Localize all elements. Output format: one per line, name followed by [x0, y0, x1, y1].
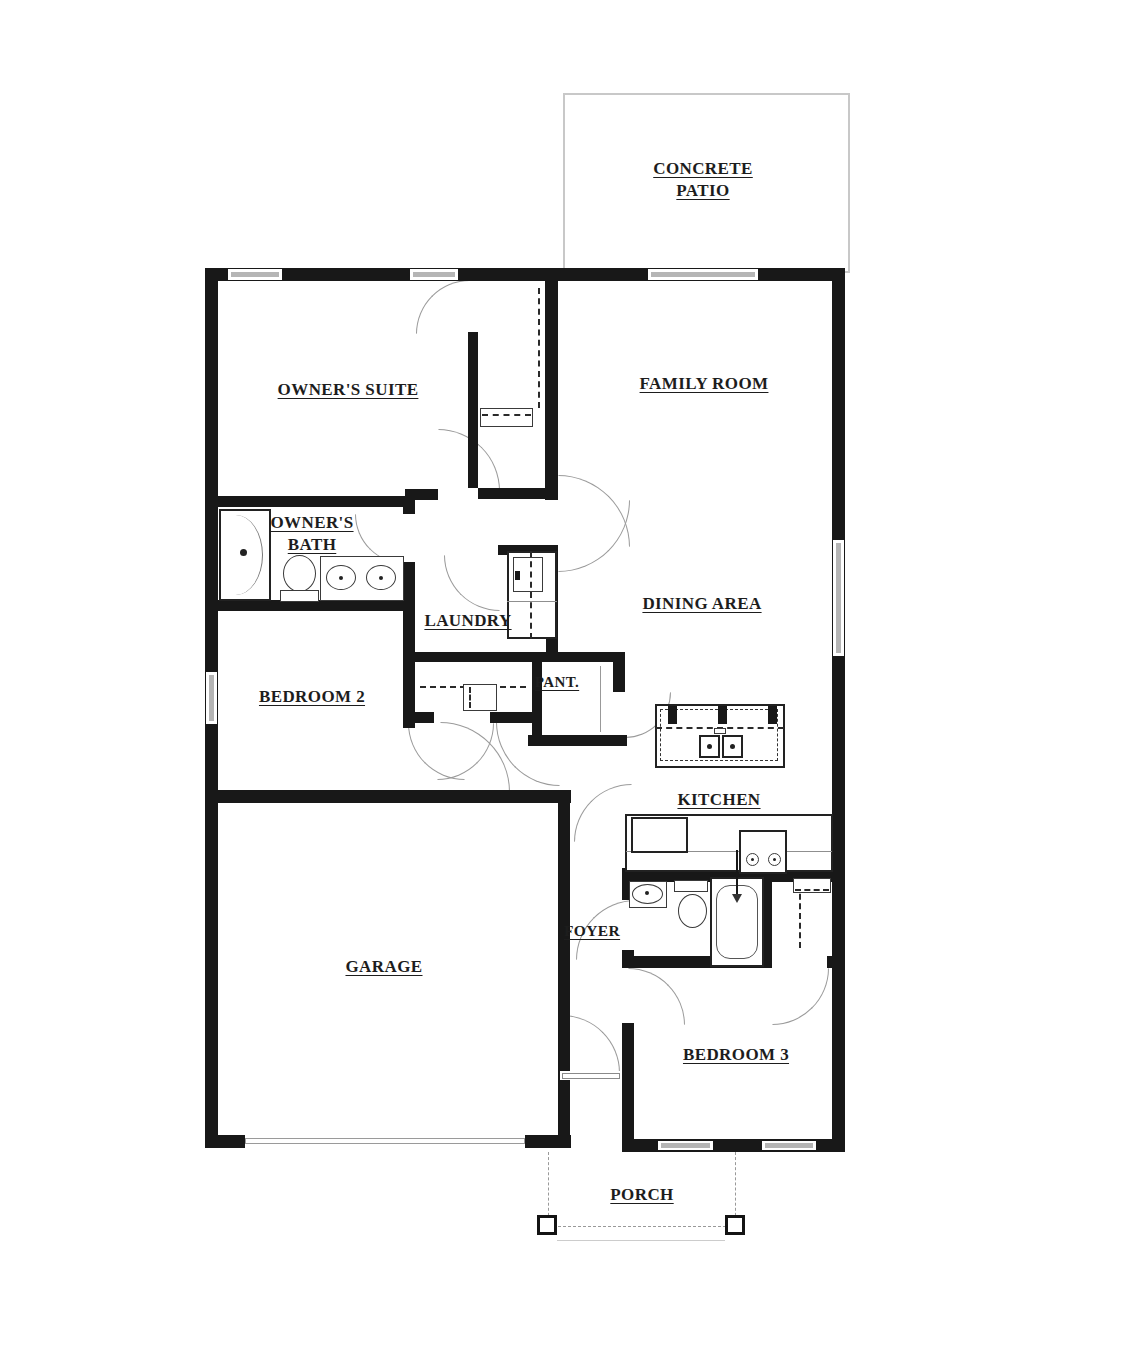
- room-label-owners-suite: OWNER'S SUITE: [278, 379, 419, 401]
- wall-exterior-right: [832, 268, 845, 1152]
- range-stove: [739, 830, 787, 874]
- room-label-garage: GARAGE: [345, 956, 422, 978]
- door-swing-owners-closet: [416, 280, 470, 334]
- wall-bath-right-upper: [403, 496, 415, 514]
- window-dining-right: [833, 540, 844, 656]
- toilet-bath2-bowl: [678, 894, 707, 928]
- wall-closet2-bottom-left: [415, 712, 434, 723]
- island-sink-drain-1: [707, 744, 712, 749]
- wall-closet2-bottom-right: [490, 712, 532, 723]
- wall-pantry-right-upper: [613, 662, 625, 692]
- room-label-concrete-patio: CONCRETE PATIO: [646, 158, 761, 202]
- closet-rod-bedroom3: [799, 884, 801, 948]
- porch-post-left: [537, 1215, 557, 1235]
- toilet-bath2-tank: [674, 880, 708, 892]
- room-label-foyer: FOYER: [564, 921, 620, 941]
- closet-shelf-owners-dash: [482, 414, 531, 416]
- bath2-sink-drain: [645, 891, 649, 895]
- room-label-laundry: LAUNDRY: [424, 610, 511, 632]
- window-bedroom2-left: [206, 672, 217, 724]
- door-swing-hall-dining-2: [558, 475, 630, 547]
- floor-plan: CONCRETE PATIO OWNER'S SUITE FAMILY ROOM…: [0, 0, 1140, 1366]
- wall-garage-bottom-left: [205, 1135, 245, 1148]
- pantry-shelf-line: [600, 666, 601, 732]
- wall-bedroom3-left: [622, 1023, 634, 1148]
- room-label-bedroom-2: BEDROOM 2: [259, 686, 365, 708]
- stove-burner-1-center: [751, 858, 754, 861]
- room-label-kitchen: KITCHEN: [677, 789, 760, 811]
- washer-dryer-divider: [507, 601, 557, 602]
- front-door: [560, 1071, 622, 1080]
- vanity-sink-1-drain: [339, 576, 343, 580]
- wall-bath-top: [205, 496, 412, 507]
- window-owners-suite-1: [228, 269, 282, 280]
- window-owners-suite-2: [410, 269, 458, 280]
- wall-pantry-bottom: [528, 735, 627, 746]
- door-swing-laundry: [444, 555, 500, 611]
- wall-closet2-pantry-top: [415, 652, 625, 662]
- porch-roofline-front: [548, 1226, 736, 1227]
- window-patio-slider: [648, 269, 758, 280]
- shower-drain: [240, 549, 247, 556]
- garage-door: [245, 1135, 525, 1148]
- island-faucet: [714, 728, 726, 734]
- room-label-porch: PORCH: [610, 1184, 673, 1206]
- bar-stool-1: [668, 706, 677, 724]
- wall-owners-closet-left: [468, 332, 478, 488]
- stove-burner-2-center: [773, 858, 776, 861]
- door-swing-bedroom3: [628, 968, 685, 1025]
- washer-latch: [515, 571, 520, 580]
- closet-shelf-bedroom2-dash: [469, 687, 471, 708]
- door-swing-front-door: [562, 1015, 620, 1073]
- wall-owners-closet-right: [545, 280, 558, 500]
- refrigerator: [631, 817, 688, 853]
- closet-shelf-owners: [480, 408, 533, 427]
- island-sink-drain-2: [730, 744, 735, 749]
- room-label-dining-area: DINING AREA: [642, 593, 761, 615]
- window-bedroom3-1: [658, 1141, 713, 1150]
- room-label-family-room: FAMILY ROOM: [640, 373, 769, 395]
- bar-stool-2: [718, 706, 727, 724]
- vanity-sink-2-drain: [379, 576, 383, 580]
- wall-bath-bed2-right: [403, 562, 415, 728]
- door-swing-bedroom3-closet: [772, 968, 829, 1025]
- wall-owners-closet-bottom: [478, 488, 558, 499]
- closet-rod-owners: [538, 288, 540, 408]
- wall-garage-right: [558, 790, 570, 1148]
- wall-garage-top: [205, 790, 571, 803]
- washer-dryer-centerline: [530, 551, 532, 639]
- toilet-owners-tank: [280, 590, 319, 602]
- bathtub-plumbing-arrow: [732, 894, 742, 903]
- porch-step-line: [557, 1240, 725, 1241]
- closet-shelf-bedroom3-dash: [795, 889, 829, 891]
- room-label-owners-bath: OWNER'S BATH: [266, 512, 358, 556]
- door-swing-kitchen-foyer: [574, 784, 632, 842]
- toilet-owners-bowl: [283, 555, 316, 592]
- room-label-bedroom-3: BEDROOM 3: [683, 1044, 789, 1066]
- bar-stool-3: [768, 706, 777, 724]
- window-bedroom3-2: [762, 1141, 816, 1150]
- bathtub-plumbing-line: [736, 850, 738, 896]
- room-label-pantry: PANT.: [535, 673, 579, 693]
- porch-post-right: [725, 1215, 745, 1235]
- wall-bed3-top-right-stub: [827, 956, 845, 968]
